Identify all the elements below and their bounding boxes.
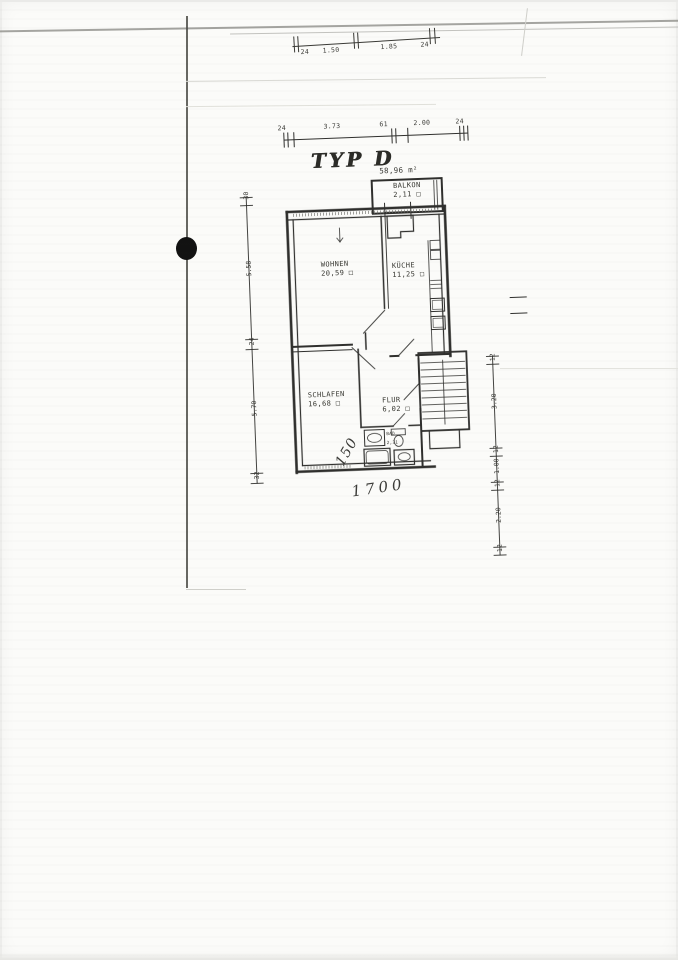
dim-pagetop-1: 1.50 bbox=[322, 46, 339, 55]
dim-pagetop-0: 24 bbox=[300, 48, 309, 57]
scan-bottom-shadow bbox=[0, 953, 678, 960]
plan-total-area: 58,96 m² bbox=[379, 165, 418, 175]
dim-plantop-3: 2.00 bbox=[413, 118, 430, 127]
scan-streak-3 bbox=[186, 589, 246, 590]
dim-right-1: 3.20 bbox=[490, 387, 499, 415]
room-name-bad: BAD bbox=[386, 431, 395, 437]
dim-pagetop-2: 1.85 bbox=[380, 42, 397, 51]
room-area-schlafen: 16,68 □ bbox=[308, 399, 341, 409]
scanned-floorplan-page: 24 1.50 1.85 24 bbox=[0, 0, 678, 960]
floorplan: 24 3.73 61 2.00 24 TYP D 58,96 m² WOHNEN… bbox=[231, 110, 558, 582]
scan-streak-1 bbox=[186, 77, 546, 82]
dim-left-4: 32 bbox=[252, 461, 261, 489]
room-name-flur: FLUR bbox=[382, 396, 401, 405]
room-area-wohnen: 20,59 □ bbox=[321, 269, 354, 279]
dim-right-6: 12 bbox=[495, 534, 504, 562]
scan-hole-artifact bbox=[176, 237, 197, 260]
scan-edge-line bbox=[186, 16, 188, 588]
room-name-kueche: KÜCHE bbox=[392, 261, 415, 270]
dim-plantop-1: 3.73 bbox=[323, 122, 340, 131]
dim-left-2: 24 bbox=[247, 327, 256, 355]
dim-plantop-0: 24 bbox=[277, 124, 286, 132]
dim-right-0: 12 bbox=[488, 343, 497, 371]
room-area-bad: 2,31 bbox=[387, 440, 399, 446]
room-name-wohnen: WOHNEN bbox=[321, 260, 349, 270]
dim-right-4: 12 bbox=[493, 469, 502, 497]
dim-right-5: 2.20 bbox=[494, 501, 503, 529]
dim-plantop-4: 24 bbox=[455, 117, 464, 125]
dim-pagetop-3: 24 bbox=[420, 40, 429, 49]
scan-streak-2 bbox=[186, 104, 436, 107]
dim-plantop-2: 61 bbox=[379, 120, 388, 128]
dim-left-1: 5.58 bbox=[244, 254, 253, 282]
room-area-flur: 6,02 □ bbox=[382, 404, 410, 414]
scan-streak-corner bbox=[521, 8, 528, 56]
dim-left-0: 30 bbox=[242, 181, 251, 209]
dim-left-3: 5.70 bbox=[250, 394, 259, 422]
room-area-kueche: 11,25 □ bbox=[392, 270, 425, 280]
